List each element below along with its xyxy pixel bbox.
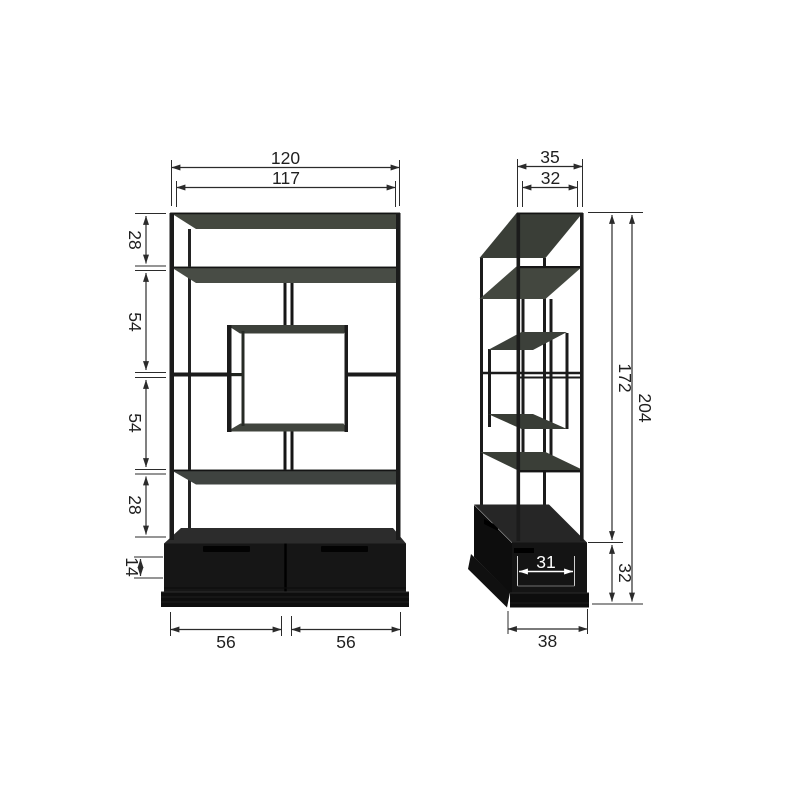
side-view bbox=[468, 213, 589, 608]
side-dim-heights: 172 32 204 bbox=[588, 213, 655, 605]
side-base-inner-label: 31 bbox=[536, 552, 555, 572]
front-width-total-label: 120 bbox=[271, 148, 300, 168]
side-far-rear-post bbox=[480, 258, 483, 506]
side-center-cube bbox=[488, 299, 569, 470]
front-right-post bbox=[396, 213, 401, 540]
side-dim-depth-inner: 32 bbox=[523, 168, 578, 207]
front-dim-drawer-widths: 56 56 bbox=[171, 612, 401, 652]
front-drawer-handle-left bbox=[203, 546, 250, 552]
front-width-inner-label: 117 bbox=[272, 168, 300, 188]
side-depth-total-label: 35 bbox=[540, 147, 559, 167]
front-dim-height-chain: 28 54 54 28 bbox=[125, 214, 166, 538]
front-drawer-width-left-label: 56 bbox=[216, 632, 235, 652]
front-drawer-height-label: 14 bbox=[122, 557, 142, 577]
front-base-cabinet bbox=[161, 528, 409, 607]
front-plinth bbox=[161, 592, 409, 608]
side-depth-inner-label: 32 bbox=[541, 168, 560, 188]
front-base-top bbox=[164, 528, 406, 544]
side-total-height-label: 204 bbox=[635, 393, 655, 422]
side-top-face bbox=[480, 213, 584, 259]
front-center-struts bbox=[284, 278, 294, 471]
front-top-shelf bbox=[170, 213, 400, 230]
side-base-height-label: 32 bbox=[615, 563, 635, 582]
dimension-diagram: 120 117 28 54 54 28 bbox=[0, 0, 800, 800]
front-section-height-3-label: 54 bbox=[125, 413, 145, 433]
front-middle-bar bbox=[170, 373, 400, 377]
side-base-cabinet bbox=[468, 505, 589, 608]
front-drawer-handle-right bbox=[321, 546, 368, 552]
side-near-rear-post bbox=[517, 213, 521, 541]
side-dim-base-depth: 38 bbox=[508, 609, 588, 651]
front-section-height-2-label: 54 bbox=[125, 312, 145, 332]
side-shelf-b bbox=[480, 452, 583, 470]
front-drawer-width-right-label: 56 bbox=[336, 632, 355, 652]
front-shelf-2 bbox=[170, 267, 400, 284]
side-shelf-a bbox=[480, 266, 584, 299]
front-section-height-1-label: 28 bbox=[125, 230, 145, 249]
front-shelf-3 bbox=[170, 470, 400, 485]
front-left-post bbox=[170, 213, 175, 540]
front-section-height-4-label: 28 bbox=[125, 495, 145, 514]
front-view bbox=[161, 213, 409, 608]
side-base-depth-label: 38 bbox=[538, 631, 557, 651]
side-frame-height-label: 172 bbox=[615, 363, 635, 392]
front-center-cube bbox=[227, 325, 348, 432]
front-dim-drawer-height: 14 bbox=[122, 557, 163, 578]
side-near-front-post bbox=[580, 213, 584, 541]
front-dim-width-inner: 117 bbox=[177, 168, 396, 207]
diagram-canvas: 120 117 28 54 54 28 bbox=[0, 0, 800, 800]
side-plinth bbox=[510, 593, 589, 608]
